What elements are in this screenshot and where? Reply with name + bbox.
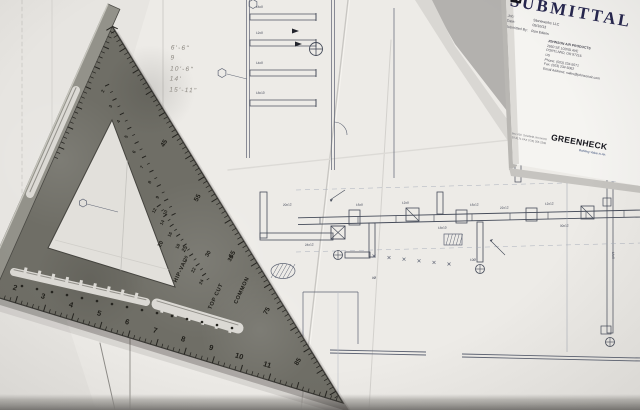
pivot-hole bbox=[126, 306, 129, 309]
duct-label: 16x8 bbox=[256, 5, 263, 9]
duct-label: 12x12 bbox=[545, 202, 554, 206]
duct-label: 30x12 bbox=[560, 224, 569, 228]
duct-label: 20x12 bbox=[283, 203, 292, 207]
pivot-hole bbox=[186, 318, 189, 321]
duct-label: 16x8 bbox=[356, 203, 363, 207]
scene-canvas: 20x1224x1216x812x822x1210Ø8Ø30x1214x818x… bbox=[0, 0, 640, 410]
duct-label: 14x8 bbox=[611, 252, 615, 259]
slot-notch bbox=[38, 271, 40, 278]
slot-notch bbox=[25, 268, 27, 275]
thermostat-symbol bbox=[310, 43, 323, 56]
slot-notch bbox=[135, 293, 137, 300]
pivot-hole bbox=[81, 297, 84, 300]
slot-notch bbox=[122, 290, 124, 297]
pivot-hole bbox=[171, 315, 174, 318]
pivot-hole bbox=[36, 288, 39, 291]
slot-notch bbox=[80, 280, 82, 287]
pivot-hole bbox=[141, 309, 144, 312]
photo-blueprints-desk: 20x1224x1216x812x822x1210Ø8Ø30x1214x818x… bbox=[0, 0, 640, 410]
pivot-hole bbox=[216, 324, 219, 327]
diffuser-symbol bbox=[334, 251, 343, 260]
submittal-sheet bbox=[501, 0, 640, 193]
duct-label: 22x12 bbox=[500, 206, 509, 210]
duct-label: 8Ø bbox=[372, 276, 377, 280]
submittal-paper bbox=[506, 0, 640, 186]
diffuser-symbol bbox=[606, 338, 615, 347]
slot-notch bbox=[108, 286, 110, 293]
duct-label: 12x8 bbox=[256, 31, 263, 35]
pivot-hole bbox=[21, 285, 24, 288]
slot-notch bbox=[161, 306, 163, 313]
duct-label: 14x8 bbox=[256, 61, 263, 65]
diffuser-symbol bbox=[476, 265, 485, 274]
pivot-hole bbox=[231, 327, 234, 330]
duct-label: 10Ø bbox=[470, 258, 477, 262]
duct-label: 12x8 bbox=[402, 201, 409, 205]
duct-label: 16x12 bbox=[470, 203, 479, 207]
slot-notch bbox=[189, 314, 191, 321]
pivot-hole bbox=[96, 300, 99, 303]
pivot-hole bbox=[51, 291, 54, 294]
slot-notch bbox=[94, 283, 96, 290]
pivot-hole bbox=[156, 312, 159, 315]
slot-notch bbox=[66, 277, 68, 284]
duct-label: 18x10 bbox=[256, 91, 265, 95]
slot-notch bbox=[52, 274, 54, 281]
slot-notch bbox=[175, 310, 177, 317]
duct-label: 24x12 bbox=[305, 243, 314, 247]
pivot-hole bbox=[201, 321, 204, 324]
pivot-hole bbox=[66, 294, 69, 297]
duct-label: 18x10 bbox=[438, 226, 447, 230]
pivot-hole bbox=[111, 303, 114, 306]
